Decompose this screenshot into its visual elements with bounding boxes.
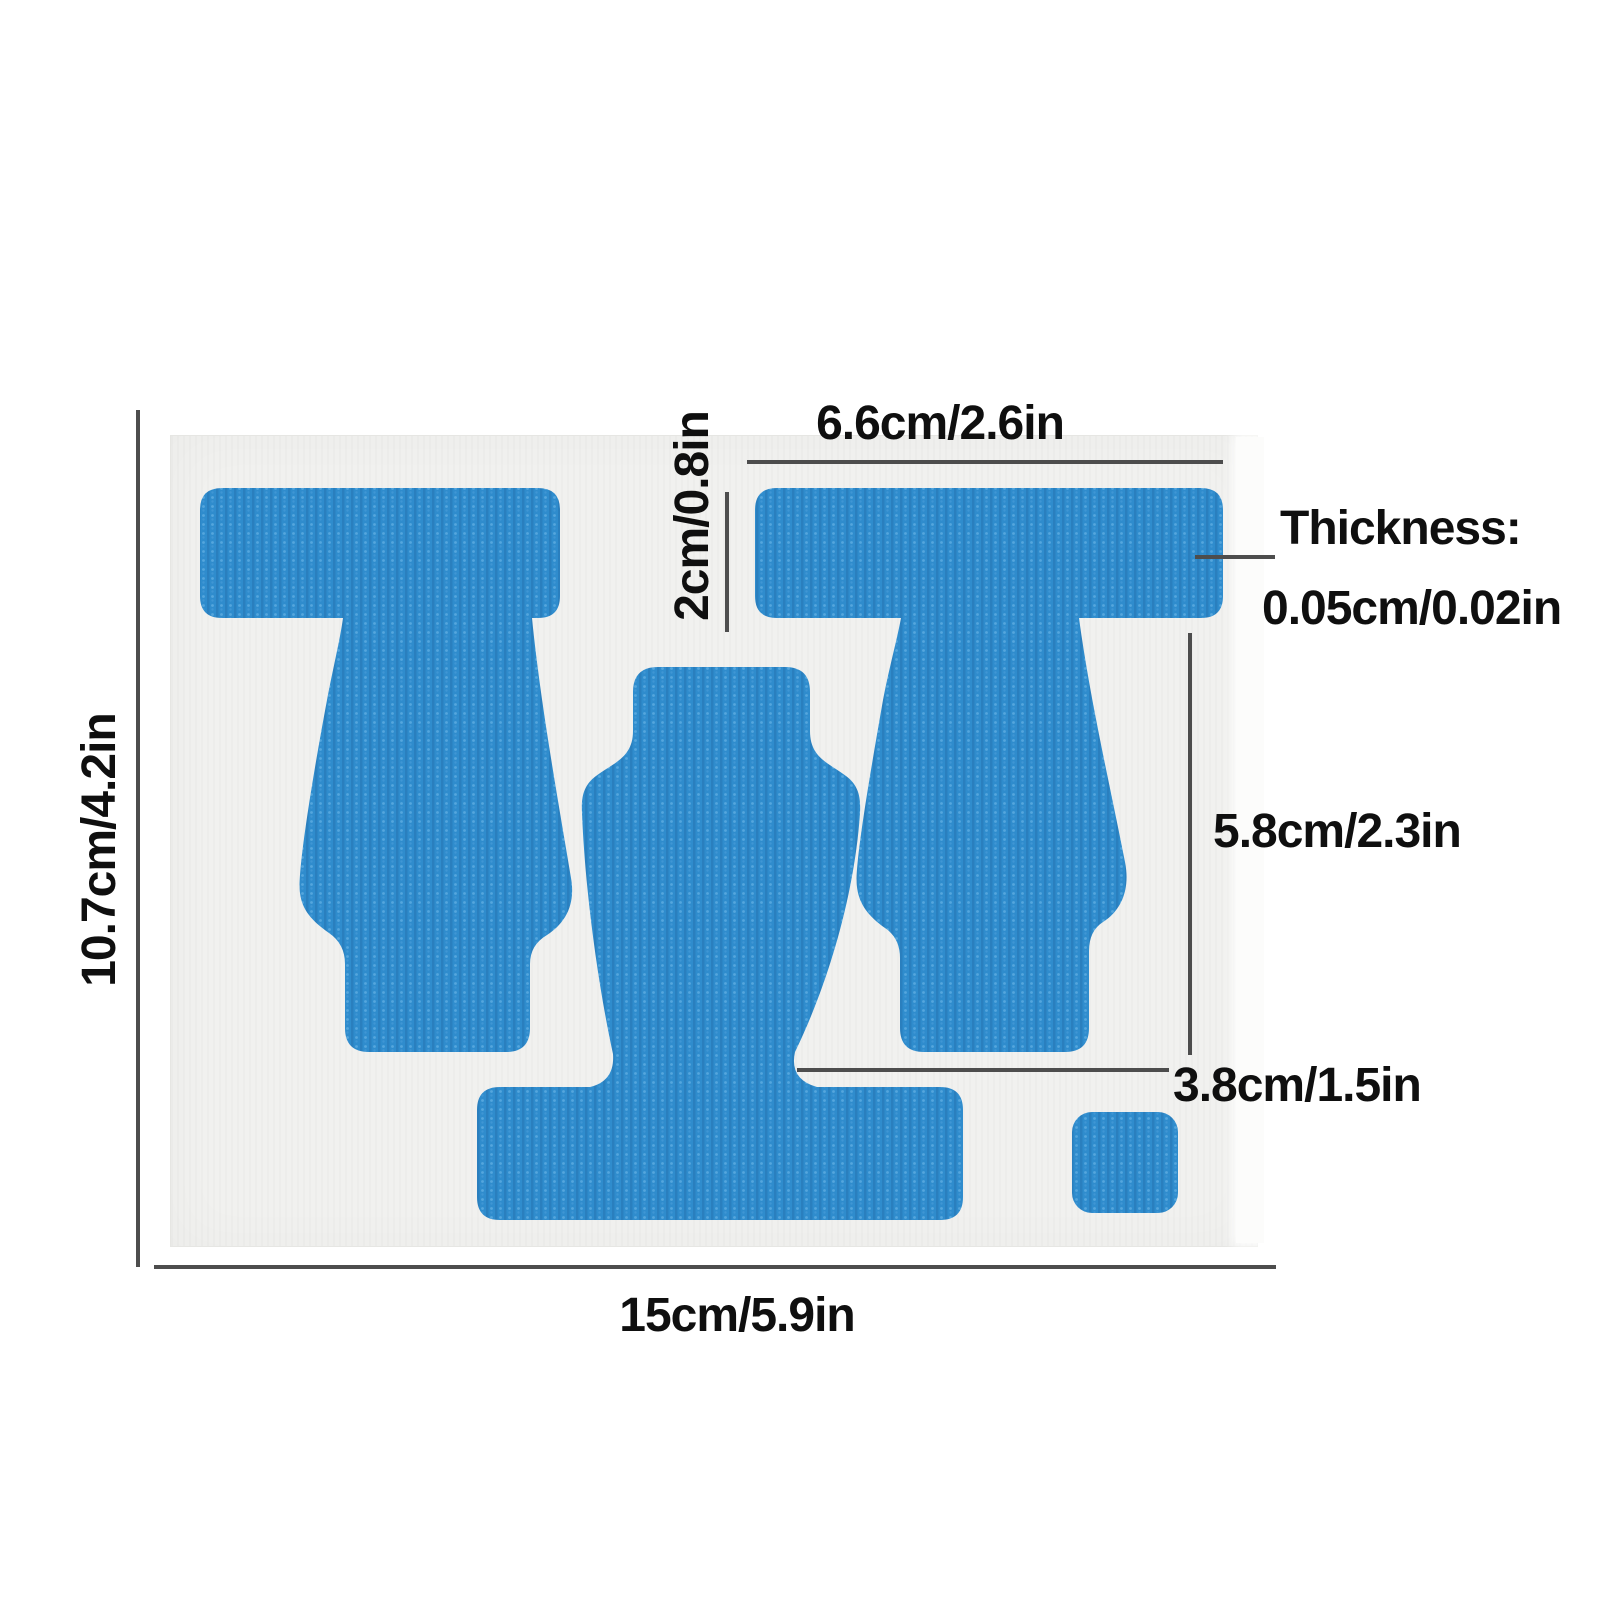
foot-width-label: 3.8cm/1.5in <box>1173 1060 1421 1112</box>
thickness-callout-line <box>1195 555 1275 559</box>
sheet-width-label: 15cm/5.9in <box>487 1290 987 1342</box>
sheet-height-label: 10.7cm/4.2in <box>74 690 126 1010</box>
dim-line-top-width <box>747 460 1223 464</box>
bar-height-label: 2cm/0.8in <box>667 386 719 646</box>
dim-line-foot-width <box>797 1068 1169 1072</box>
dim-line-sheet-height <box>136 410 140 1267</box>
dim-line-sheet-width <box>154 1265 1276 1269</box>
small-square-tape-patch <box>1072 1112 1178 1213</box>
left-t-tape-patch <box>200 488 572 1052</box>
product-dimension-diagram: 6.6cm/2.6in 2cm/0.8in Thickness: 0.05cm/… <box>0 0 1600 1600</box>
dim-line-bar-height <box>725 492 729 632</box>
tape-patches-graphic <box>0 0 1600 1600</box>
top-width-label: 6.6cm/2.6in <box>700 398 1180 450</box>
thickness-value-label: 0.05cm/0.02in <box>1262 583 1561 635</box>
dim-line-body-height <box>1188 633 1192 1055</box>
thickness-title-label: Thickness: <box>1280 503 1521 555</box>
body-height-label: 5.8cm/2.3in <box>1213 806 1461 858</box>
